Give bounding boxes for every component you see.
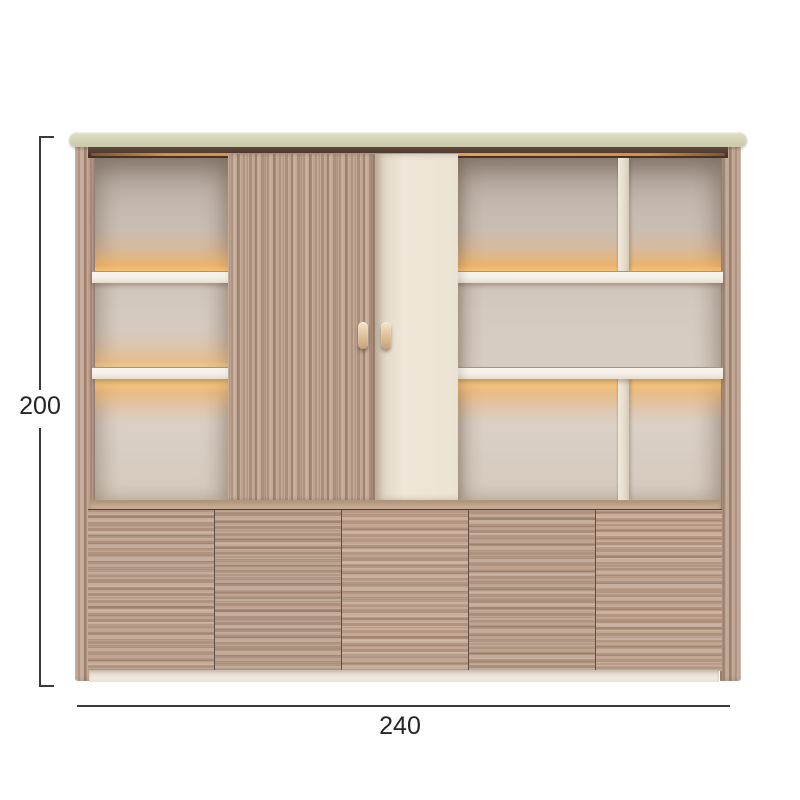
- door-handle: [381, 322, 391, 349]
- vertical-divider-upper: [618, 158, 629, 272]
- door-handle: [358, 322, 368, 349]
- height-dimension-tick-bottom: [39, 685, 54, 687]
- sliding-door-wood: [228, 154, 375, 500]
- led-glow: [95, 227, 229, 272]
- led-glow: [458, 378, 618, 424]
- led-glow: [458, 227, 618, 272]
- led-glow: [629, 378, 721, 424]
- shelf: [92, 271, 231, 283]
- plinth: [89, 670, 719, 682]
- lower-door-front: [215, 510, 341, 671]
- height-dimension-line-upper: [39, 137, 41, 390]
- lower-door-front: [88, 510, 214, 671]
- height-dimension-label: 200: [8, 392, 72, 420]
- lower-door-front: [596, 510, 722, 671]
- cabinet-right-side-panel: [720, 135, 741, 681]
- shelf: [456, 367, 723, 379]
- width-dimension-label: 240: [368, 712, 432, 740]
- lower-door-front: [469, 510, 595, 671]
- led-glow: [95, 326, 229, 367]
- vertical-divider-lower: [618, 378, 629, 500]
- cabinet: [75, 132, 741, 682]
- furniture-dimension-diagram: 200 240: [0, 0, 800, 800]
- cabinet-top-panel: [69, 132, 747, 147]
- led-glow: [95, 378, 229, 424]
- lower-door-front: [342, 510, 468, 671]
- led-glow: [629, 227, 721, 272]
- width-dimension-line: [77, 705, 730, 707]
- height-dimension-tick-top: [39, 136, 54, 138]
- height-dimension-line-lower: [39, 428, 41, 687]
- lower-cabinet-doors: [88, 509, 722, 671]
- shelf: [456, 271, 723, 283]
- interior-right-section: [458, 158, 721, 500]
- shelf: [92, 367, 231, 379]
- counter-top-edge: [89, 500, 721, 509]
